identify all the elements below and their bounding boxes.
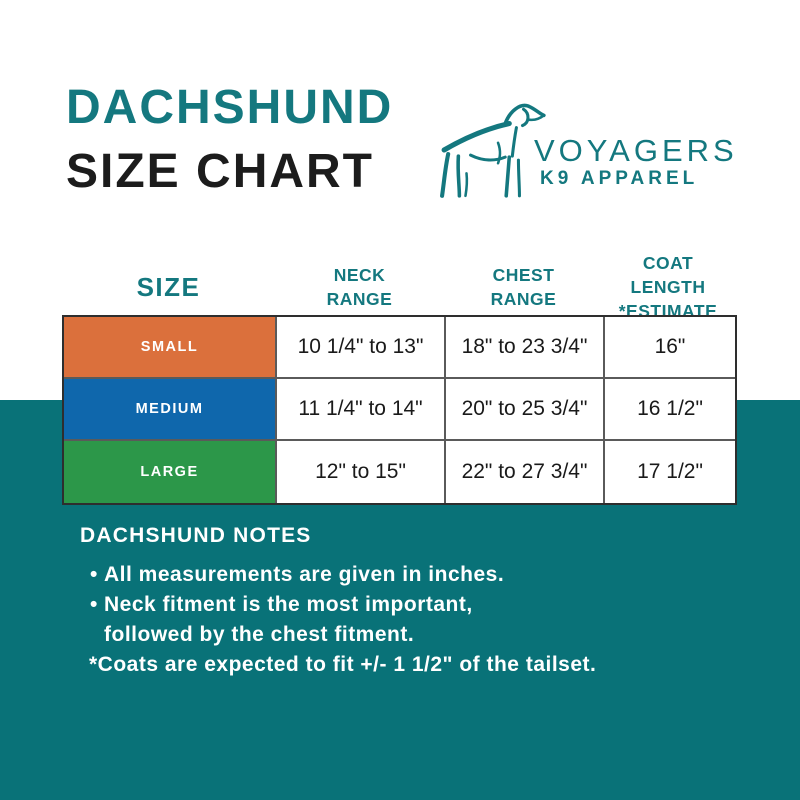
- bullet-icon: •: [90, 590, 104, 620]
- header-chest-range: CHEST RANGE: [444, 263, 603, 311]
- header-neck-line1: NECK: [275, 263, 444, 287]
- table-column-headers: SIZE NECK RANGE CHEST RANGE COAT LENGTH …: [62, 261, 737, 313]
- bullet-icon: •: [90, 560, 104, 590]
- chest-value-large: 22" to 27 3/4": [446, 441, 605, 503]
- size-label-small: SMALL: [64, 317, 277, 377]
- coat-value-medium: 16 1/2": [605, 379, 735, 439]
- header-size: SIZE: [62, 272, 275, 303]
- neck-value-large: 12" to 15": [277, 441, 446, 503]
- title-breed: DACHSHUND: [66, 84, 393, 132]
- header-chest-line2: RANGE: [444, 287, 603, 311]
- coat-value-small: 16": [605, 317, 735, 377]
- header-coat-length: COAT LENGTH *ESTIMATE: [603, 251, 733, 323]
- note-continuation: followed by the chest fitment.: [80, 620, 740, 650]
- size-label-large: LARGE: [64, 441, 277, 503]
- header-neck-line2: RANGE: [275, 287, 444, 311]
- page-title: DACHSHUND SIZE CHART: [66, 84, 393, 196]
- chest-value-small: 18" to 23 3/4": [446, 317, 605, 377]
- note-text: *Coats are expected to fit +/- 1 1/2" of…: [89, 650, 596, 680]
- note-text: All measurements are given in inches.: [104, 560, 504, 590]
- brand-sub-name: K9 APPAREL: [540, 168, 698, 190]
- brand-name: VOYAGERS: [534, 133, 738, 169]
- table-row-small: SMALL 10 1/4" to 13" 18" to 23 3/4" 16": [64, 317, 735, 379]
- neck-value-small: 10 1/4" to 13": [277, 317, 446, 377]
- size-table: SMALL 10 1/4" to 13" 18" to 23 3/4" 16" …: [62, 315, 737, 505]
- note-text: Neck fitment is the most important,: [104, 590, 473, 620]
- size-label-medium: MEDIUM: [64, 379, 277, 439]
- coat-value-large: 17 1/2": [605, 441, 735, 503]
- note-bullet-measurements: • All measurements are given in inches.: [80, 560, 740, 590]
- chest-value-medium: 20" to 25 3/4": [446, 379, 605, 439]
- table-row-medium: MEDIUM 11 1/4" to 14" 20" to 25 3/4" 16 …: [64, 379, 735, 441]
- header-chest-line1: CHEST: [444, 263, 603, 287]
- header-neck-range: NECK RANGE: [275, 263, 444, 311]
- neck-value-medium: 11 1/4" to 14": [277, 379, 446, 439]
- notes-heading: DACHSHUND NOTES: [80, 524, 740, 548]
- note-bullet-neck-fitment: • Neck fitment is the most important,: [80, 590, 740, 620]
- table-row-large: LARGE 12" to 15" 22" to 27 3/4" 17 1/2": [64, 441, 735, 503]
- size-chart-page: DACHSHUND SIZE CHART VOYAGERS K9 APPAREL…: [0, 0, 800, 800]
- note-footnote: *Coats are expected to fit +/- 1 1/2" of…: [80, 650, 740, 680]
- title-size-chart: SIZE CHART: [66, 148, 393, 196]
- notes-section: DACHSHUND NOTES • All measurements are g…: [80, 524, 740, 680]
- header-coat-line1: COAT LENGTH: [603, 251, 733, 299]
- note-text: followed by the chest fitment.: [104, 620, 414, 650]
